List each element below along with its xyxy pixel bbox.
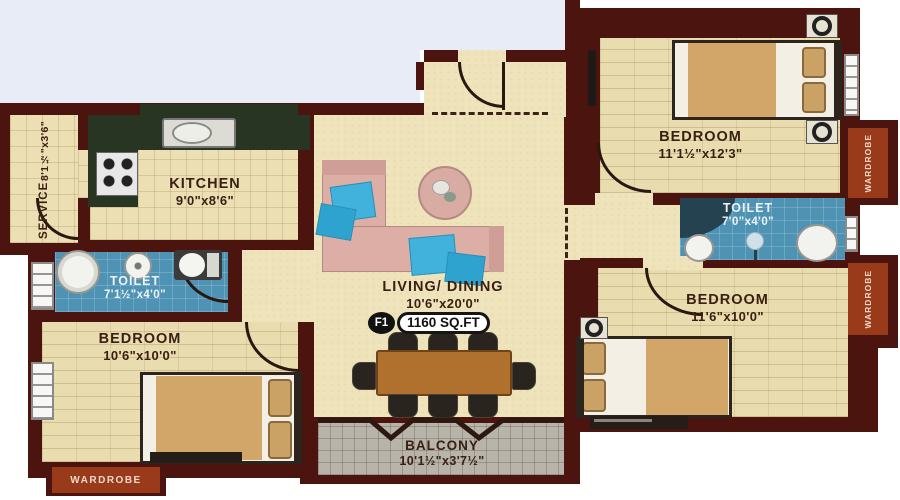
room-name: BEDROOM: [618, 129, 783, 146]
background-top-left: [0, 0, 420, 103]
headboard: [834, 40, 842, 120]
wardrobe-right-middle: WARDROBE: [848, 263, 888, 335]
bed-blanket: [646, 339, 728, 415]
table-decor: [444, 192, 456, 202]
sink-basin: [172, 122, 212, 144]
room-dims: 10'6"x20'0": [358, 296, 528, 311]
unit-badge: F1: [368, 312, 395, 334]
sofa-armrest: [489, 226, 504, 272]
room-name: BALCONY: [352, 438, 532, 454]
dining-table: [376, 350, 512, 396]
room-dims: 11'1½"x12'3": [618, 146, 783, 161]
wardrobe-left: WARDROBE: [52, 467, 160, 493]
counter-back: [140, 104, 298, 115]
pillow: [582, 379, 606, 412]
door-opening: [243, 312, 301, 322]
door-leaf: [502, 62, 505, 110]
room-name: TOILET: [688, 201, 808, 216]
room-name: BEDROOM: [645, 292, 810, 309]
dining-chair: [512, 362, 536, 390]
window: [845, 216, 858, 252]
wardrobe-right-top: WARDROBE: [848, 128, 888, 198]
washbasin: [684, 234, 714, 262]
room-name: LIVING/ DINING: [358, 279, 528, 296]
room-dims: 7'1½"x4'0": [55, 289, 215, 303]
room-label-toilet-right: TOILET 7'0"x4'0": [688, 201, 808, 229]
room-name: KITCHEN: [125, 176, 285, 193]
room-dims: 7'0"x4'0": [688, 216, 808, 230]
room-label-toilet-left: TOILET 7'1½"x4'0": [55, 274, 215, 302]
pillow: [802, 47, 826, 78]
bed-blanket: [156, 376, 262, 460]
lamp: [585, 319, 603, 337]
tv-console: [590, 416, 688, 429]
room-name: TOILET: [55, 274, 215, 289]
room-dims: 11'6"x10'0": [645, 309, 810, 324]
room-dims: 10'6"x10'0": [60, 348, 220, 363]
pillow: [268, 379, 292, 417]
shower-figure: [754, 250, 757, 260]
room-label-bedroom-top-right: BEDROOM 11'1½"x12'3": [618, 129, 783, 161]
wardrobe-label: WARDROBE: [70, 475, 141, 486]
bed-blanket: [688, 43, 776, 117]
wall: [565, 0, 580, 50]
area-value: 1160 SQ.FT: [397, 312, 490, 334]
room-label-balcony: BALCONY 10'1½"x3'7½": [352, 438, 532, 469]
room-dims: 10'1½"x3'7½": [352, 454, 532, 469]
window: [31, 362, 54, 420]
area-badge: F1 1160 SQ.FT: [368, 312, 490, 334]
room-label-bedroom-left: BEDROOM 10'6"x10'0": [60, 331, 220, 363]
wardrobe-label: WARDROBE: [863, 270, 873, 329]
lamp: [812, 16, 832, 36]
corridor-floor: [580, 205, 680, 258]
headboard: [294, 372, 302, 464]
window: [31, 262, 54, 310]
room-name: BEDROOM: [60, 331, 220, 348]
floor-plan: WARDROBE WARDROBE WARDROBE SERVICE 8'1½"…: [0, 0, 900, 500]
room-label-service: SERVICE 8'1½"x3'6": [14, 118, 76, 242]
nightstand: [806, 14, 838, 38]
window: [844, 54, 859, 116]
room-name: SERVICE: [38, 181, 52, 238]
door-opening: [595, 193, 653, 205]
lamp: [812, 122, 832, 142]
toilet-seat: [796, 224, 838, 262]
pillow: [582, 342, 606, 375]
tv: [588, 50, 596, 106]
room-label-kitchen: KITCHEN 9'0"x8'6": [125, 176, 285, 208]
room-label-living: LIVING/ DINING 10'6"x20'0": [358, 279, 528, 311]
headboard: [576, 336, 584, 418]
corridor-threshold: [565, 208, 568, 258]
sofa-cushion: [315, 203, 356, 241]
room-label-bedroom-bottom-right: BEDROOM 11'6"x10'0": [645, 292, 810, 324]
shower-drain: [746, 232, 764, 250]
tv-console: [150, 452, 242, 463]
nightstand: [580, 317, 608, 339]
dining-chair: [352, 362, 376, 390]
room-dims: 9'0"x8'6": [125, 193, 285, 208]
tv-console-line: [594, 419, 652, 422]
pillow: [268, 421, 292, 459]
room-dims: 8'1½"x3'6": [39, 121, 51, 181]
sofa-armrest: [322, 160, 386, 175]
nightstand: [806, 120, 838, 144]
wardrobe-label: WARDROBE: [863, 134, 873, 193]
foyer-threshold: [432, 112, 548, 115]
pillow: [802, 82, 826, 113]
